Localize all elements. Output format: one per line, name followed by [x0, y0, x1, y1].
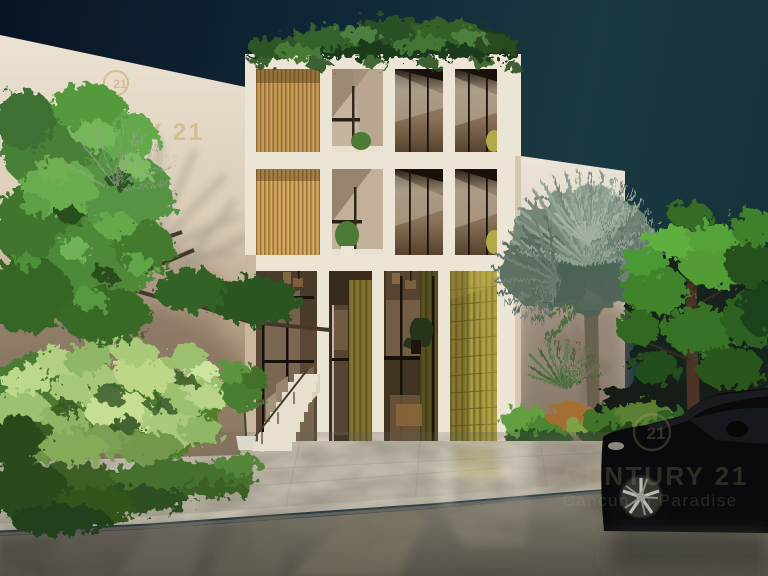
- svg-text:21: 21: [113, 77, 127, 91]
- svg-text:Cancun in Paradise: Cancun in Paradise: [562, 491, 737, 510]
- svg-text:CENTURY 21: CENTURY 21: [563, 461, 748, 491]
- svg-text:21: 21: [647, 424, 666, 443]
